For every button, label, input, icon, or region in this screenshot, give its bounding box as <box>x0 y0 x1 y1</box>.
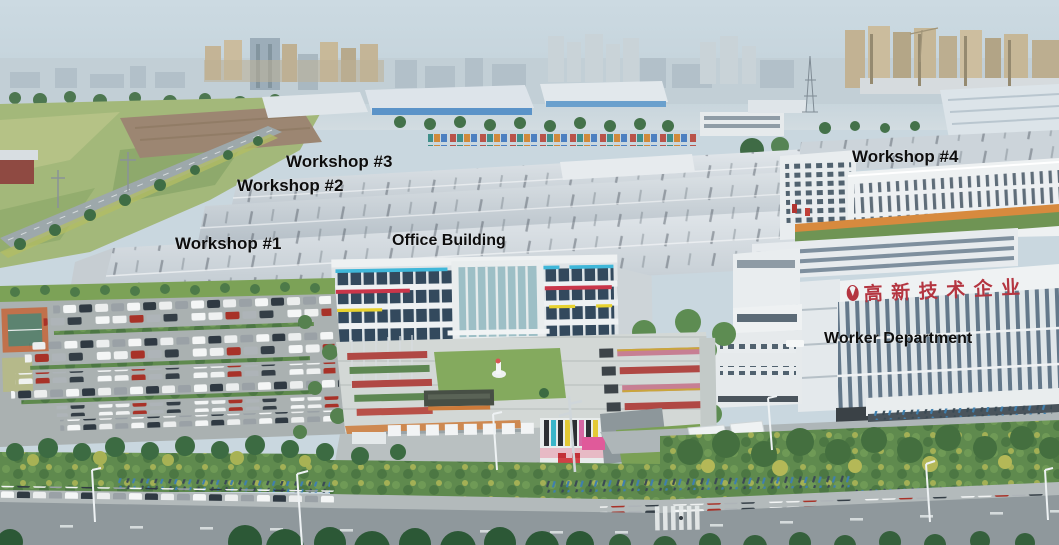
pink-tent <box>582 437 605 450</box>
label-workshop-1: Workshop #1 <box>175 234 281 253</box>
label-workshop-2: Workshop #2 <box>237 176 343 195</box>
label-workshop-3: Workshop #3 <box>286 152 392 171</box>
parking-lot <box>0 278 348 447</box>
label-office-building: Office Building <box>392 232 506 249</box>
apartment-cluster-right <box>845 26 1059 94</box>
scene-canvas: 高新技术企业 <box>0 0 1059 545</box>
container-row <box>428 134 696 146</box>
aerial-photo: 高新技术企业 <box>0 0 1059 545</box>
label-workshop-4: Workshop #4 <box>852 147 959 166</box>
entrance <box>446 260 550 350</box>
label-worker-department: Worker Department <box>824 330 973 347</box>
gate-sign-wall <box>424 389 494 410</box>
